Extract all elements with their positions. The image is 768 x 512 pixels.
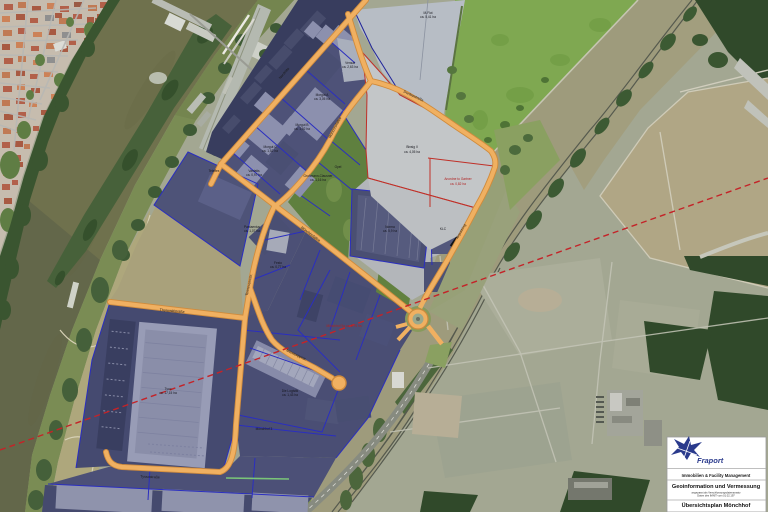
- svg-text:ca. 0,82 ha: ca. 0,82 ha: [450, 182, 466, 186]
- svg-text:ca. 0,97 ha: ca. 0,97 ha: [246, 173, 262, 177]
- svg-text:ca. 17,15 ha: ca. 17,15 ha: [159, 391, 177, 395]
- svg-text:ca. 1,43 ha: ca. 1,43 ha: [282, 393, 298, 397]
- svg-text:ca. 1,92 ha: ca. 1,92 ha: [294, 127, 310, 131]
- svg-text:Opel: Opel: [335, 165, 342, 169]
- svg-text:Daten des IMNIT vom 01.02.197: Daten des IMNIT vom 01.02.197: [697, 494, 735, 498]
- svg-text:Mönchhof 3: Mönchhof 3: [256, 427, 273, 431]
- svg-text:Tyssostraße: Tyssostraße: [140, 475, 160, 480]
- svg-text:Geoinformation und Vermessung: Geoinformation und Vermessung: [672, 484, 761, 490]
- svg-text:Fraport: Fraport: [697, 456, 724, 465]
- svg-text:ca. 1,52 ha: ca. 1,52 ha: [262, 149, 278, 153]
- svg-text:KLC: KLC: [440, 227, 447, 231]
- svg-text:Anordne to Gartner: Anordne to Gartner: [444, 177, 472, 181]
- svg-text:ca. 3,05 ha: ca. 3,05 ha: [314, 97, 330, 101]
- svg-text:ca. 1,16 ha: ca. 1,16 ha: [310, 178, 326, 182]
- svg-text:ca. 2,63 ha: ca. 2,63 ha: [342, 65, 358, 69]
- svg-text:ca. 1,07 ha: ca. 1,07 ha: [244, 229, 260, 233]
- svg-text:Teleflex: Teleflex: [209, 169, 220, 173]
- svg-text:Mönchhof 5a ca. 5,76 ha: Mönchhof 5a ca. 5,76 ha: [326, 324, 361, 328]
- svg-text:Immobilien & Facility Manageme: Immobilien & Facility Management: [682, 473, 751, 478]
- svg-text:ca. 0,77 ha: ca. 0,77 ha: [270, 265, 286, 269]
- svg-text:Übersichtsplan Mönchhof: Übersichtsplan Mönchhof: [682, 502, 751, 509]
- svg-text:Binsig II: Binsig II: [406, 145, 417, 149]
- svg-text:ca. 5,41 ha: ca. 5,41 ha: [420, 15, 436, 19]
- svg-text:ca. 4,05 ha: ca. 4,05 ha: [404, 150, 420, 154]
- svg-text:ca. 5,9 ha: ca. 5,9 ha: [383, 229, 397, 233]
